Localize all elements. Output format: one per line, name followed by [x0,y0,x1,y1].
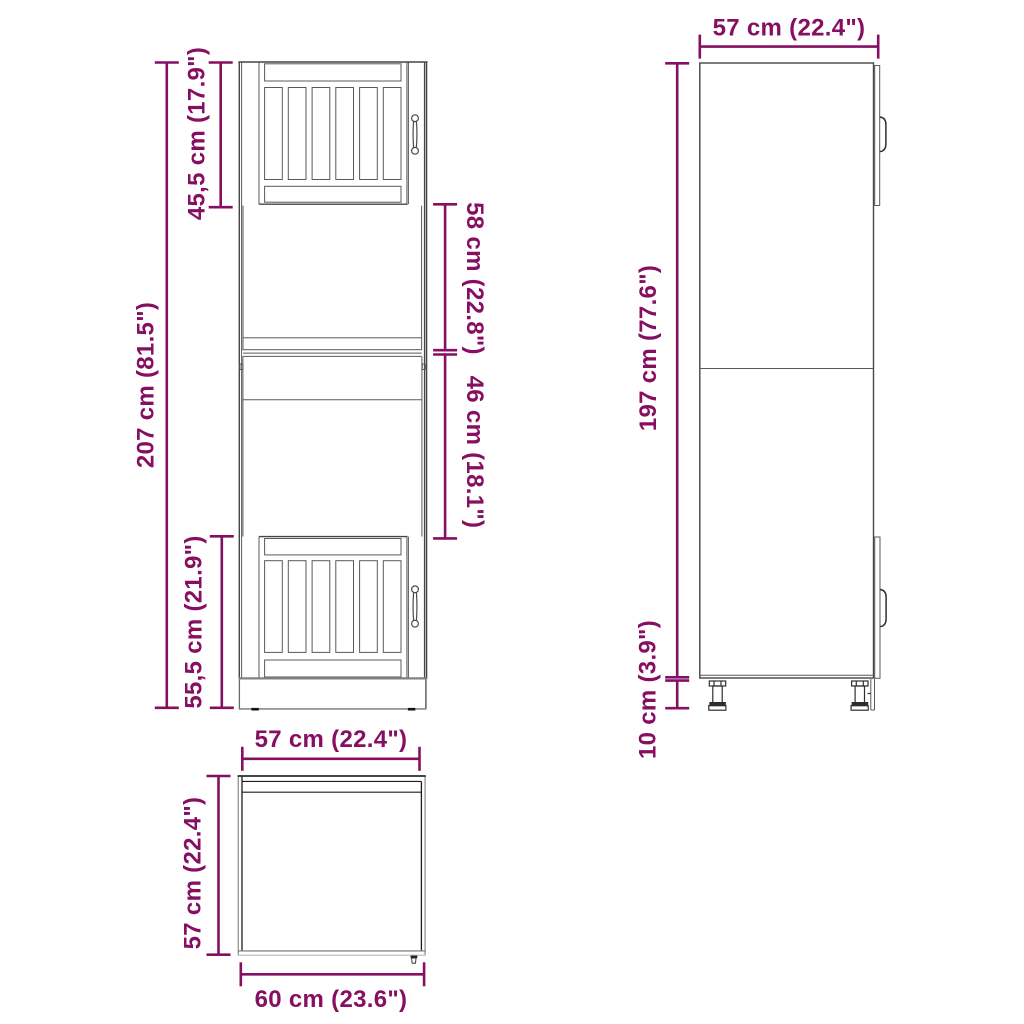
svg-text:45,5 cm (17.9"): 45,5 cm (17.9") [183,47,210,220]
svg-text:57 cm (22.4"): 57 cm (22.4") [713,14,866,41]
svg-text:60 cm (23.6"): 60 cm (23.6") [255,986,408,1013]
svg-text:58 cm (22.8"): 58 cm (22.8") [461,202,488,355]
svg-text:197 cm (77.6"): 197 cm (77.6") [635,265,662,431]
svg-text:55,5 cm (21.9"): 55,5 cm (21.9") [181,535,208,708]
svg-text:57 cm (22.4"): 57 cm (22.4") [180,797,207,950]
svg-text:207 cm (81.5"): 207 cm (81.5") [133,302,160,468]
svg-text:10 cm (3.9"): 10 cm (3.9") [635,620,662,759]
svg-text:57 cm (22.4"): 57 cm (22.4") [255,726,408,753]
svg-text:46 cm (18.1"): 46 cm (18.1") [461,376,488,529]
